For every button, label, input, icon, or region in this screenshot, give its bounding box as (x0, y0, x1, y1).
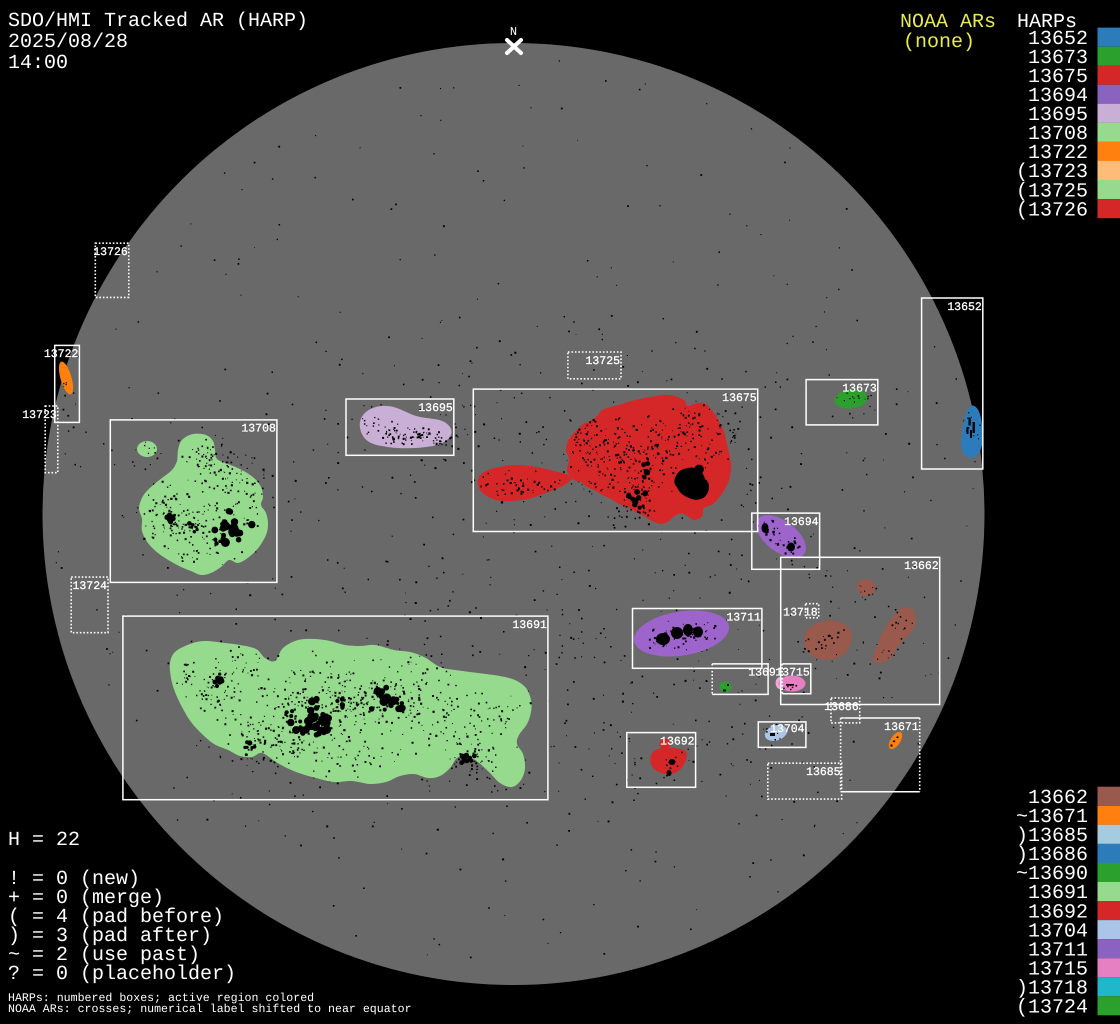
svg-text:(13724: (13724 (1016, 997, 1088, 1020)
svg-text:? = 0 (placeholder): ? = 0 (placeholder) (8, 963, 236, 986)
svg-text:SDO/HMI Tracked AR (HARP): SDO/HMI Tracked AR (HARP) (8, 10, 308, 33)
svg-text:NOAA ARs: crosses; numerical l: NOAA ARs: crosses; numerical label shift… (8, 1003, 412, 1016)
svg-text:(none): (none) (903, 31, 975, 54)
svg-text:H = 22: H = 22 (8, 829, 80, 852)
svg-text:(13726: (13726 (1016, 199, 1088, 222)
svg-text:2025/08/28: 2025/08/28 (8, 31, 128, 54)
svg-text:14:00: 14:00 (8, 52, 68, 75)
